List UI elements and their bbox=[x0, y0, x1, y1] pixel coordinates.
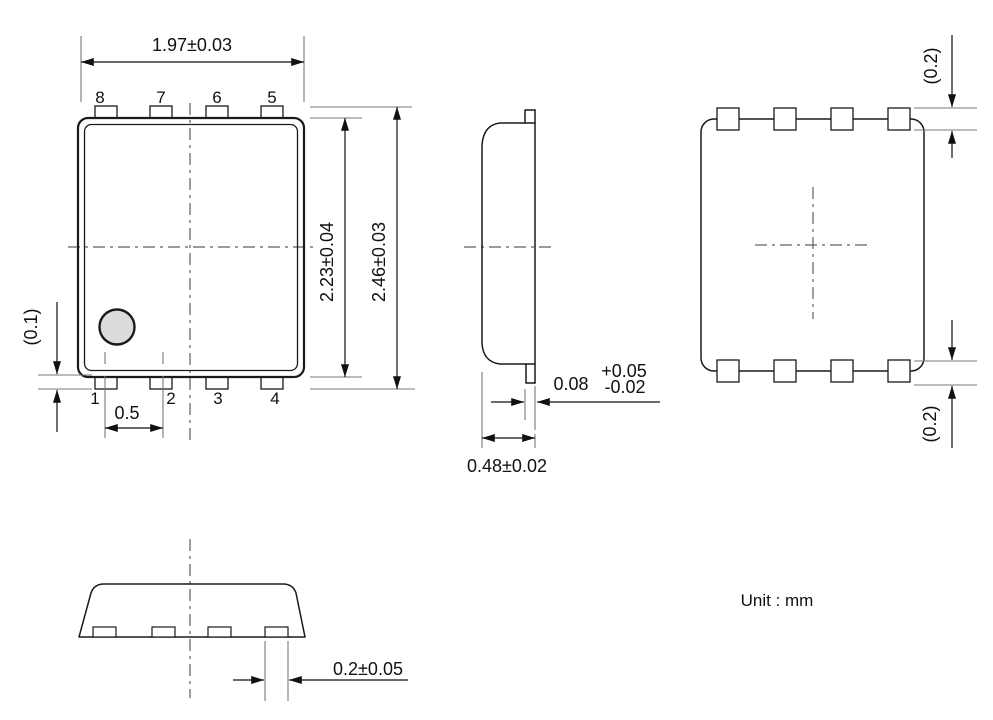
unit-label: Unit : mm bbox=[741, 591, 814, 610]
drawing-canvas: 8 7 6 5 1 2 3 4 1.97±0.03 2.23±0.04 2.46… bbox=[0, 0, 993, 720]
dim-pad-size-top-label: (0.2) bbox=[921, 47, 941, 84]
dim-pad-width: 0.2±0.05 bbox=[233, 641, 408, 701]
dim-body-height: 2.23±0.04 bbox=[310, 118, 362, 377]
dim-lead-standoff-label: (0.1) bbox=[21, 308, 41, 345]
pin1-indicator-circle bbox=[100, 310, 135, 345]
front-view: 8 7 6 5 1 2 3 4 1.97±0.03 2.23±0.04 2.46… bbox=[21, 35, 415, 443]
pin-pad-2 bbox=[150, 377, 172, 389]
front-bottom-pins bbox=[95, 377, 283, 389]
back-pad bbox=[888, 108, 910, 130]
dim-width-label: 1.97±0.03 bbox=[152, 35, 232, 55]
back-pad bbox=[774, 108, 796, 130]
pin-label-2: 2 bbox=[166, 389, 175, 408]
dim-pad-size-bottom-label: (0.2) bbox=[920, 405, 940, 442]
dim-lead-thickness-tol-minus: -0.02 bbox=[604, 377, 645, 397]
side-view: 0.08 +0.05 -0.02 0.48±0.02 bbox=[464, 110, 660, 476]
back-pad bbox=[717, 360, 739, 382]
dim-lead-thickness: 0.08 +0.05 -0.02 bbox=[491, 361, 660, 430]
back-pad bbox=[717, 108, 739, 130]
bottom-pad bbox=[265, 627, 288, 637]
dim-package-thickness-label: 0.48±0.02 bbox=[467, 456, 547, 476]
back-pad bbox=[831, 360, 853, 382]
pin-pad-5 bbox=[261, 106, 283, 118]
back-pad bbox=[831, 108, 853, 130]
pin-label-3: 3 bbox=[213, 389, 222, 408]
package-dimension-drawing: 8 7 6 5 1 2 3 4 1.97±0.03 2.23±0.04 2.46… bbox=[0, 0, 993, 720]
side-body-outline bbox=[482, 123, 535, 364]
pin-pad-1 bbox=[95, 377, 117, 389]
front-top-pins bbox=[95, 106, 283, 118]
dim-lead-standoff: (0.1) bbox=[21, 302, 92, 432]
dim-body-height-label: 2.23±0.04 bbox=[317, 222, 337, 302]
bottom-pad bbox=[93, 627, 116, 637]
pin-pad-7 bbox=[150, 106, 172, 118]
dim-lead-thickness-label: 0.08 bbox=[553, 374, 588, 394]
dim-lead-pitch-label: 0.5 bbox=[114, 403, 139, 423]
back-pad bbox=[888, 360, 910, 382]
pin-pad-6 bbox=[206, 106, 228, 118]
pin-pad-3 bbox=[206, 377, 228, 389]
dim-pad-width-label: 0.2±0.05 bbox=[333, 659, 403, 679]
pin-label-7: 7 bbox=[156, 88, 165, 107]
pin-label-5: 5 bbox=[267, 88, 276, 107]
pin-label-6: 6 bbox=[212, 88, 221, 107]
side-top-lead-tab bbox=[525, 110, 535, 123]
pin-label-8: 8 bbox=[95, 88, 104, 107]
pin-pad-4 bbox=[261, 377, 283, 389]
bottom-pad bbox=[152, 627, 175, 637]
pin-label-4: 4 bbox=[270, 389, 279, 408]
dim-lead-pitch: 0.5 bbox=[105, 352, 163, 438]
back-view: (0.2) (0.2) bbox=[701, 35, 977, 448]
pin-label-1: 1 bbox=[90, 389, 99, 408]
bottom-view: 0.2±0.05 bbox=[79, 539, 408, 701]
bottom-pad bbox=[208, 627, 231, 637]
back-pad bbox=[774, 360, 796, 382]
side-bottom-lead-tab bbox=[526, 364, 535, 383]
dim-overall-height-label: 2.46±0.03 bbox=[369, 222, 389, 302]
pin-pad-8 bbox=[95, 106, 117, 118]
